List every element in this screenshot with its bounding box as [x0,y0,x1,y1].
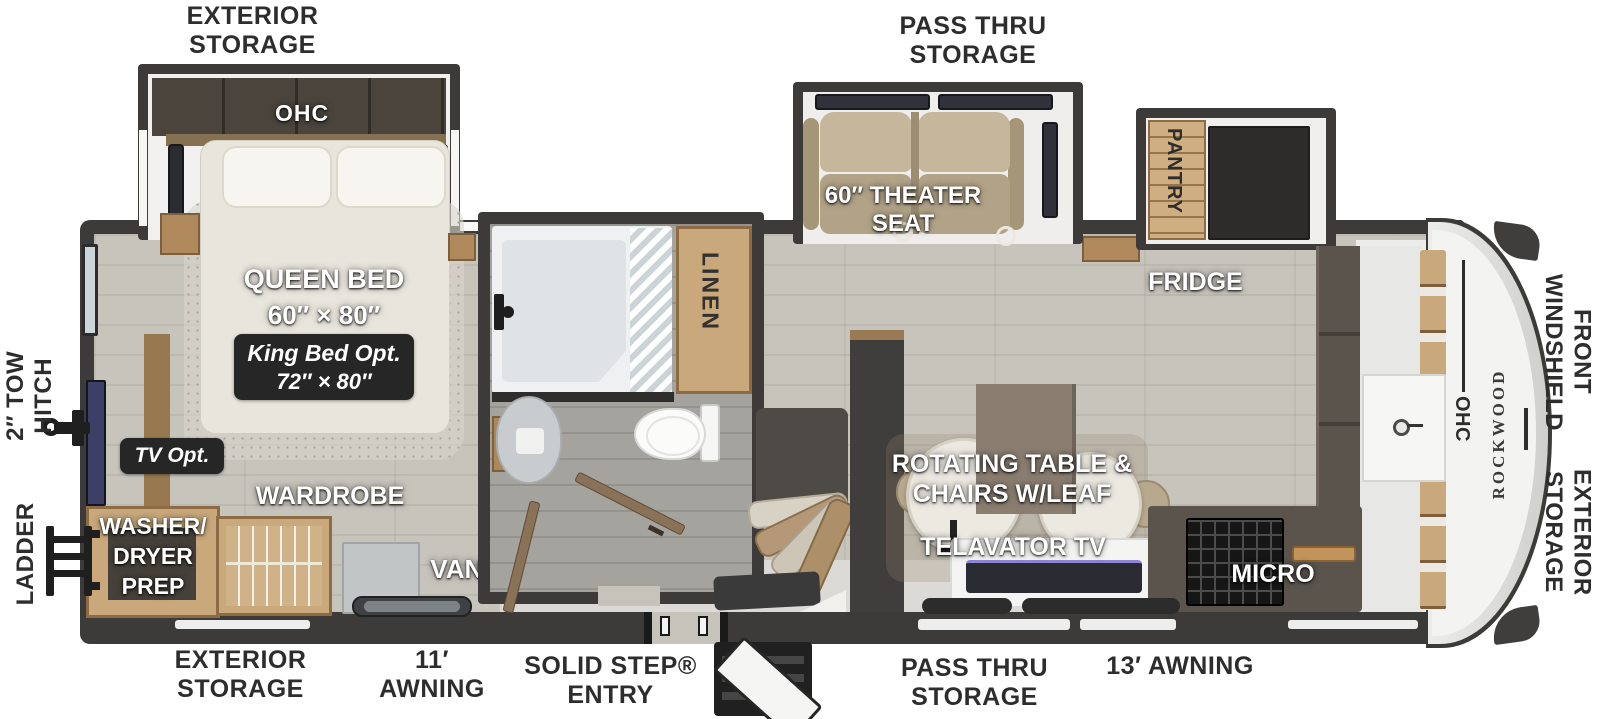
hitch-line2: HITCH [30,321,58,471]
label-front-windshield: FRONTWINDSHIELD [1538,252,1596,452]
wardrobe-label: WARDROBE [240,482,420,512]
bedroom-window-left [168,144,184,224]
dinette-line2: CHAIRS W/LEAF [878,480,1146,510]
front-storage-line2: STORAGE [1538,452,1567,612]
bottom-pass-line2: STORAGE [882,683,1067,712]
floorplan-diagram: ROCKWOOD OHC OHC QUEEN BED 60″ × 80″ Kin… [0,0,1600,719]
tow-hitch-plate [72,410,84,446]
baggage-door-passthru-2 [1080,619,1176,630]
label-top-exterior-storage: EXTERIORSTORAGE [145,2,360,60]
theater-window-side [1042,122,1058,218]
label-awning-11: 11′AWNING [362,646,502,704]
awning11-line2: AWNING [362,675,502,704]
awning11-line1: 11′ [362,646,502,675]
entry-line1: SOLID STEP® [508,652,713,681]
nightstand-left [160,213,200,255]
ladder-rail-left [46,526,54,596]
windshield-line1: FRONT [1567,252,1596,452]
kitchen-counter-vertical [1316,246,1360,510]
wardrobe-text: WARDROBE [240,482,420,512]
queen-bed-size-text: 60″ × 80″ [214,300,434,331]
kitchen-ohc-label: OHC [1450,396,1474,442]
bed-pillow-right [336,146,446,208]
fridge [1208,126,1310,240]
theater-seat-back-left [820,112,912,172]
half-wall-wood-cap [850,330,904,340]
queen-bed-label: QUEEN BED [214,264,434,296]
toilet-seat-line [646,416,700,456]
shower-head-dot [502,306,514,318]
shower-glass [630,228,672,392]
ladder-rung-1 [54,536,84,543]
label-top-pass-thru: PASS THRUSTORAGE [878,12,1068,70]
bed-pillow-left [222,146,332,208]
televator-label: TELAVATOR TV [898,533,1128,563]
label-bottom-pass-thru: PASS THRUSTORAGE [882,654,1067,712]
bottom-storage-line2: STORAGE [148,675,333,704]
top-storage-line2: STORAGE [145,31,360,60]
front-storage-line1: EXTERIOR [1567,452,1596,612]
label-tow-hitch: 2″ TOWHITCH [2,321,58,471]
baggage-door-right [1288,620,1418,629]
galley-mat-right [1022,598,1180,614]
entry-threshold-mark-2 [698,616,708,636]
televator-text: TELAVATOR TV [898,533,1128,563]
theater-window-top-right [938,94,1053,110]
queen-bed-size: 60″ × 80″ [214,300,434,331]
entry-threshold-mark-1 [660,616,670,636]
bedroom-dresser [144,334,170,520]
baggage-door-passthru-1 [918,619,1070,630]
label-ladder: LADDER [12,489,40,619]
entry-shelf-wood [1082,236,1140,262]
king-opt-line1: King Bed Opt. [247,339,400,368]
entry-jamb-right [720,612,728,644]
micro-label: MICRO [1208,560,1338,590]
pantry-label: PANTRY [1162,128,1186,214]
bottom-pass-line1: PASS THRU [882,654,1067,683]
ladder-bracket-bottom [92,582,100,590]
label-awning-13: 13′ AWNING [1080,652,1280,681]
top-pass-line1: PASS THRU [878,12,1068,41]
label-solid-step-entry: SOLID STEP®ENTRY [508,652,713,710]
top-storage-line1: EXTERIOR [145,2,360,31]
theater-line2: SEAT [793,210,1013,238]
entry-mat [713,571,821,611]
queen-bed-title: QUEEN BED [214,264,434,296]
kitchen-ohc-leader-line [1462,260,1465,392]
wardrobe-hangers [226,526,322,606]
bedroom-slide-flap-left [139,130,147,226]
fridge-text: FRIDGE [1128,268,1263,298]
kitchen-ohc-text: OHC [1450,396,1474,442]
washer-line3: PREP [86,572,220,602]
bottom-storage-line1: EXTERIOR [148,646,333,675]
galley-mat-left [922,598,1012,614]
micro-text: MICRO [1208,560,1338,590]
bedroom-ohc-label: OHC [262,100,342,127]
bath-sink-counter [516,428,544,454]
bathroom-door-gap [598,586,660,606]
fridge-label: FRIDGE [1128,268,1263,298]
brand-text: ROCKWOOD [1489,369,1508,500]
label-front-exterior-storage: EXTERIORSTORAGE [1538,452,1596,612]
label-bottom-exterior-storage: EXTERIORSTORAGE [148,646,333,704]
brand-logo: ROCKWOOD [1489,354,1515,514]
ladder-text: LADDER [12,489,40,619]
kitchen-faucet-stem [1407,424,1423,427]
king-opt-line2: 72″ × 80″ [276,368,371,396]
king-bed-option-badge: King Bed Opt.72″ × 80″ [234,334,414,400]
linen-label: LINEN [696,252,724,331]
vanity-sink-basin [364,601,460,612]
windshield-line2: WINDSHIELD [1538,252,1567,452]
bedroom-ohc-text: OHC [262,100,342,127]
ladder-rung-2 [54,553,84,560]
wardrobe-rod [226,562,322,565]
tv-opt-text: TV Opt. [135,443,210,469]
dinette-line1: ROTATING TABLE & [878,450,1146,480]
theater-seat-label: 60″ THEATERSEAT [793,182,1013,239]
ladder-rung-3 [54,570,84,577]
dinette-label: ROTATING TABLE &CHAIRS W/LEAF [878,450,1146,509]
tv-option-badge: TV Opt. [120,438,224,474]
rear-window [82,244,98,336]
nightstand-right [448,233,476,261]
rear-tv [86,380,106,506]
entry-jamb-left [644,612,652,644]
shower-pan [502,240,626,382]
top-pass-line2: STORAGE [878,41,1068,70]
washer-dryer-label: WASHER/DRYERPREP [86,512,220,602]
front-cap-handle [1524,408,1528,450]
theater-seat-back-right [918,112,1010,172]
linen-text: LINEN [696,252,724,331]
ladder-bracket-top [92,530,100,538]
entry-line2: ENTRY [508,681,713,710]
theater-line1: 60″ THEATER [793,182,1013,210]
ladder-rail-right [84,526,92,596]
theater-window-top-left [815,94,930,110]
washer-line2: DRYER [86,542,220,572]
pantry-text: PANTRY [1162,128,1186,214]
washer-line1: WASHER/ [86,512,220,542]
tv-lift-screen [966,560,1142,593]
awning13-text: 13′ AWNING [1080,652,1280,681]
hitch-line1: 2″ TOW [2,321,30,471]
baggage-door-left [175,620,310,629]
kitchen-faucet-icon [1393,419,1410,436]
